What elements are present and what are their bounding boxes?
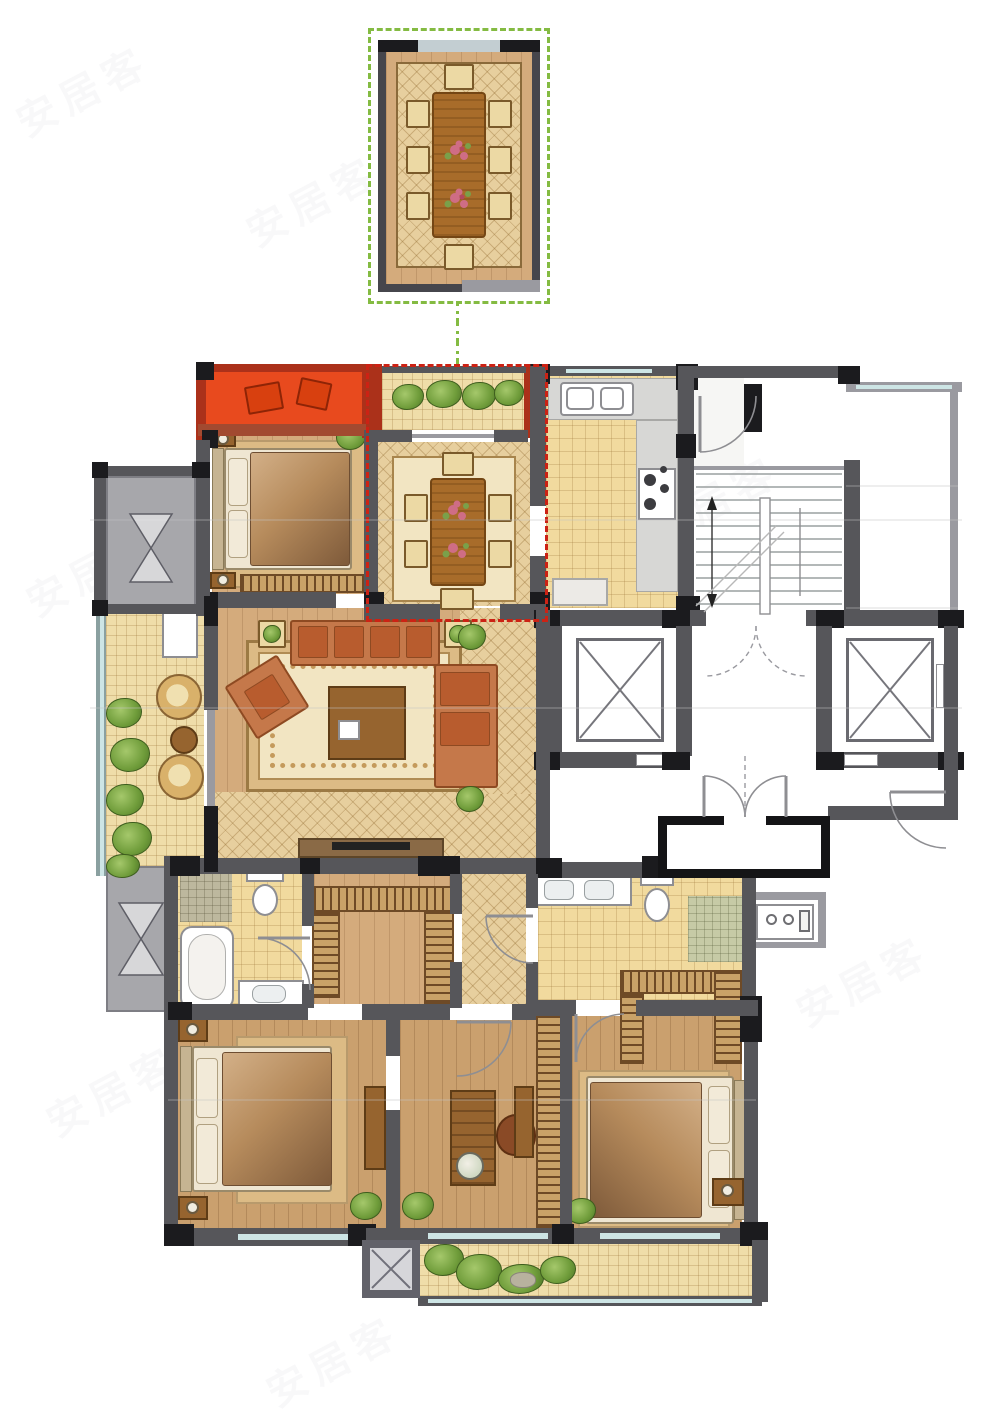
shaft-wall [676,626,692,756]
detail-highlight-border [368,28,550,304]
bath-north-wall [176,858,536,874]
desk-globe [456,1152,484,1180]
dresser-wardrobe [240,574,366,593]
selected-room-border [366,364,548,622]
stove-burner [644,498,656,510]
vanity-basin [252,985,286,1003]
stove-burner [660,484,669,493]
west-wall [164,856,178,1230]
balcony-rock [510,1272,536,1288]
bedroom3-west-wall [560,1016,572,1232]
bay-window-floor [206,370,364,424]
sofa-cushion [298,626,328,658]
sofa-cushion [406,626,432,658]
elevator-car [846,638,934,742]
bed-headboard [212,448,224,570]
kitchen-stair-wall [678,366,694,612]
bed-pillow [228,458,248,506]
balcony-glazing [428,1299,752,1303]
column [92,600,108,616]
sofa-cushion [370,626,400,658]
lobby-wall [828,806,958,820]
sofa-cushion [334,626,364,658]
column [552,1224,574,1244]
column [300,858,320,874]
master-study-wall [386,1110,400,1232]
closet-wardrobe [312,912,340,998]
window [600,1233,720,1239]
closet-wardrobe [312,886,454,912]
bathtub-basin [188,934,226,1000]
master-study-wall [386,1016,400,1056]
elevator-rail [936,664,944,708]
balcony-cabinet [162,612,198,658]
wicker-chair [156,674,202,720]
niche-wall [818,892,826,948]
hall-bath2-wall [526,874,538,908]
bedside-lamp [186,1023,199,1036]
coffee-table-tray [338,720,360,740]
bedroom3-east-wall [742,878,756,1004]
stair-east-wall [844,460,860,612]
column [744,384,762,432]
divider-column [204,806,218,872]
chaise-cushion [440,672,490,706]
column [192,462,210,478]
bedside-lamp [217,574,229,586]
bed-blanket [222,1052,332,1186]
niche-wall [748,892,826,900]
laundry-dial [766,914,777,925]
shower-room-floor [688,896,742,962]
stove-burner [660,466,667,473]
sliding-door-track [207,710,215,806]
column [816,752,844,770]
column [838,366,860,384]
niche-wall [748,942,826,948]
dining-detail-inset [0,0,1000,320]
living-balcony-wall [204,626,218,710]
bedside-lamp [721,1184,734,1197]
vestibule-opening [724,814,766,826]
balcony-table [170,726,198,754]
bedroom3-north-wall [530,1000,576,1016]
balcony-west-rail [96,600,106,876]
toilet-bowl [252,884,278,916]
ac-platform-wall [94,466,206,476]
closet-hall-wall [450,874,462,914]
kitchen-cabinet [552,578,608,606]
vanity-basin [544,880,574,900]
entry-nook-floor [694,378,744,466]
stove-burner [644,474,656,486]
window [238,1234,350,1240]
divider-column [204,596,218,626]
ac-platform-wall [94,466,106,612]
column [168,1002,192,1020]
laundry-sink [799,910,810,932]
bedroom3-north-wall [636,1000,758,1016]
master-shower [180,874,232,922]
east-outer-wall [950,392,958,612]
bedroom-south-wall [198,592,336,608]
column [418,856,460,876]
bed-pillow [196,1124,218,1184]
column [676,434,696,458]
kitchen-window [566,369,652,373]
service-shaft-south [362,1240,420,1298]
chaise-cushion [440,712,490,746]
laundry-dial [783,914,794,925]
column [92,462,108,478]
window [856,385,952,389]
bed-blanket [590,1082,702,1218]
bed-pillow [708,1086,730,1144]
fire-door-arcs [706,626,806,817]
tall-wardrobe [536,1016,562,1228]
column [662,752,690,770]
stair-landing-sill [694,466,844,470]
shaft-wall [816,626,832,756]
watermark: 安居客 [255,1300,409,1419]
shaft-wall [548,626,562,756]
bedroom3-east-wall [744,1016,758,1228]
hallway-floor [462,874,526,1004]
detail-link-line [456,304,459,366]
column [196,362,214,380]
lobby-east-wall [944,626,958,820]
hall-south-wall [176,1004,308,1020]
balcony-end-wall [752,1240,768,1302]
closet-hall-wall [450,962,462,1008]
column [536,858,562,878]
ac-platform-wall [94,604,206,614]
bedside-lamp [186,1201,199,1214]
study-cabinet [514,1086,534,1158]
unit-east-wall [536,610,550,878]
bed-pillow [228,510,248,558]
bed-pillow [196,1058,218,1118]
bed-headboard [180,1046,192,1192]
vanity-basin [584,880,614,900]
toilet-bowl [644,888,670,922]
floor-plan: 安居客 安居客 安居客 安居客 安居客 安居客 安居客 [0,0,1000,1425]
closet-wardrobe [714,970,742,1064]
ac-platform [106,476,196,606]
bedroom-north-wall [198,424,366,436]
hall-bath2-wall [526,962,538,1004]
north-wall [694,366,846,378]
window [428,1233,548,1239]
bay-wall [196,364,372,372]
stove-cooktop [638,468,676,520]
bath-closet-wall [302,874,314,926]
elevator-car [576,638,664,742]
tv [332,842,410,850]
bed-blanket [250,452,350,566]
bedroom-dresser [364,1086,386,1170]
wicker-chair [158,754,204,800]
sink-basin [566,387,594,410]
elevator-door [844,754,878,766]
column [164,1224,194,1246]
column [170,856,200,876]
sink-basin [600,387,624,410]
